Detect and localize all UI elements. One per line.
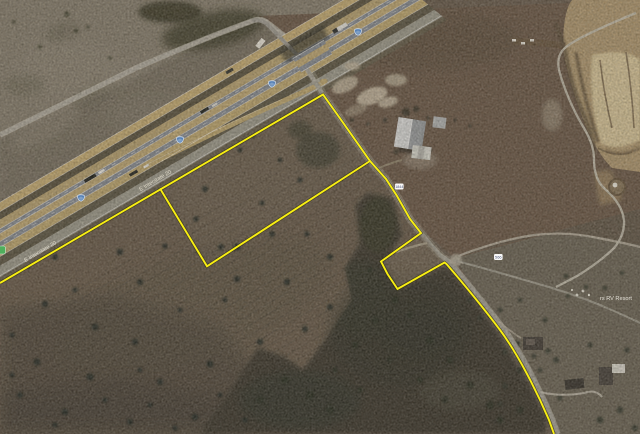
svg-text:1844: 1844 [395, 185, 403, 189]
svg-text:rs RV Resort: rs RV Resort [600, 296, 632, 302]
svg-text:566: 566 [495, 255, 502, 260]
